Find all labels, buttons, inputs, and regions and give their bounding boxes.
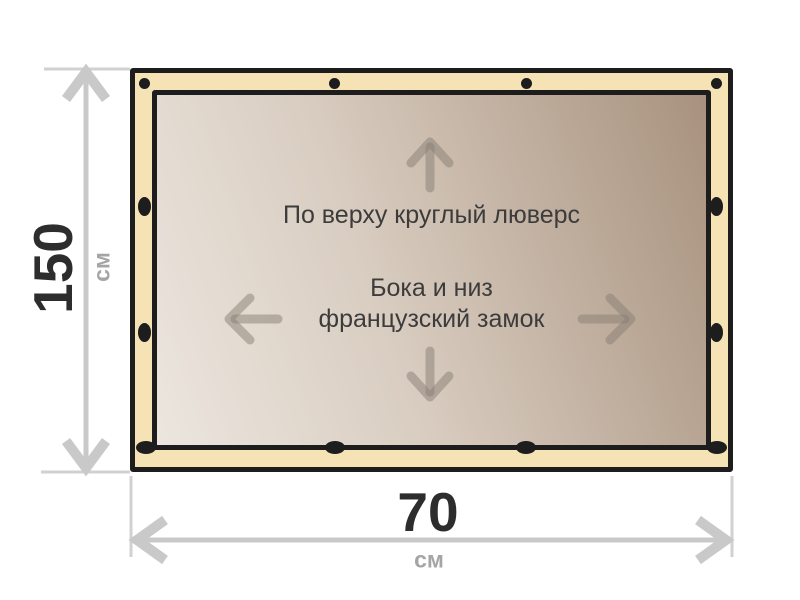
arrow-up-icon [411, 142, 449, 188]
arrow-down-icon [411, 351, 449, 397]
note-line-2: французский замок [135, 304, 728, 335]
direction-arrows [135, 73, 728, 467]
note-line-1: Бока и низ [135, 273, 728, 304]
height-unit-label: см [89, 252, 116, 282]
width-unit-label: см [414, 547, 444, 574]
sides-bottom-fastener-note: Бока и низ французский замок [135, 273, 728, 335]
height-value-label: 150 [21, 222, 85, 314]
width-value-label: 70 [397, 480, 458, 544]
top-fastener-note: По верху круглый люверс [135, 201, 728, 230]
banner: По верху круглый люверс Бока и низ франц… [130, 68, 733, 472]
banner-spec-diagram: По верху круглый люверс Бока и низ франц… [0, 0, 800, 600]
